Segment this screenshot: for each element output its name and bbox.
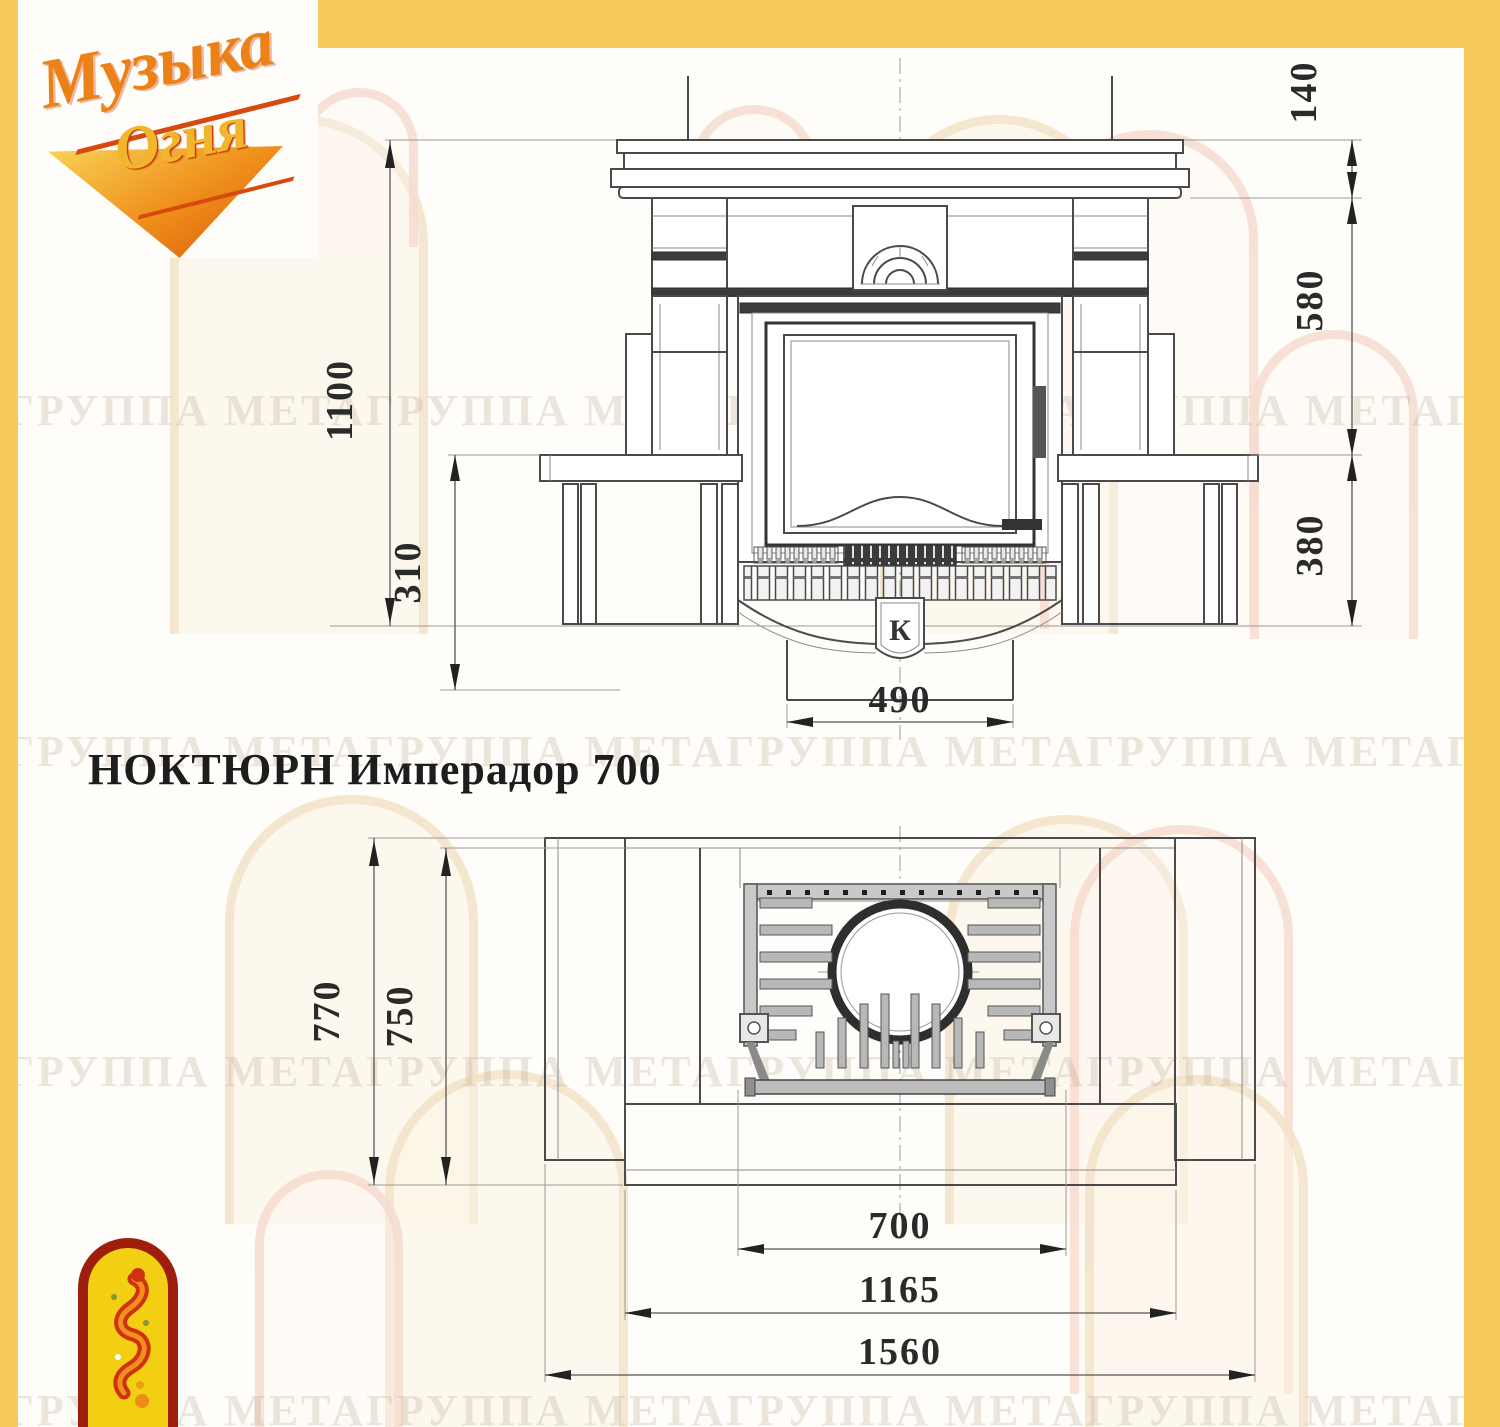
dim-plan-firebox-width: 700 [869, 1205, 932, 1247]
dim-plan-total-depth: 770 [306, 980, 348, 1043]
front-elevation-view: К [330, 58, 1362, 740]
door-handle [1033, 386, 1046, 458]
dim-plan-body-depth: 750 [379, 985, 421, 1048]
badge-letter: К [889, 614, 911, 647]
dim-front-hearth-height: 380 [1289, 514, 1331, 577]
dim-front-shelf-to-hearth: 580 [1289, 269, 1331, 332]
dim-front-base-height: 310 [387, 541, 429, 604]
plan-view [545, 826, 1255, 1215]
flame-dancer-figure [88, 1252, 168, 1427]
dim-front-plinth-width: 490 [869, 679, 932, 721]
dim-plan-hearth-width: 1165 [859, 1269, 941, 1311]
insert-brand-badge: К [876, 598, 924, 658]
technical-drawing: К 1100 310 140 [0, 0, 1500, 1427]
firebox-front [738, 296, 1062, 565]
brand-emblem [78, 1238, 178, 1427]
flue-opening [832, 904, 968, 1040]
plan-view-dimensions: 770 750 700 1165 1560 [306, 838, 1255, 1382]
dim-front-shelf-thickness: 140 [1283, 61, 1325, 124]
catalog-page: ГРУППА МЕТАГРУППА МЕТАГРУППА МЕТАГРУППА … [0, 0, 1500, 1427]
dim-front-total-height: 1100 [319, 359, 361, 441]
fan-medallion [853, 206, 947, 290]
dim-plan-total-width: 1560 [858, 1331, 942, 1373]
